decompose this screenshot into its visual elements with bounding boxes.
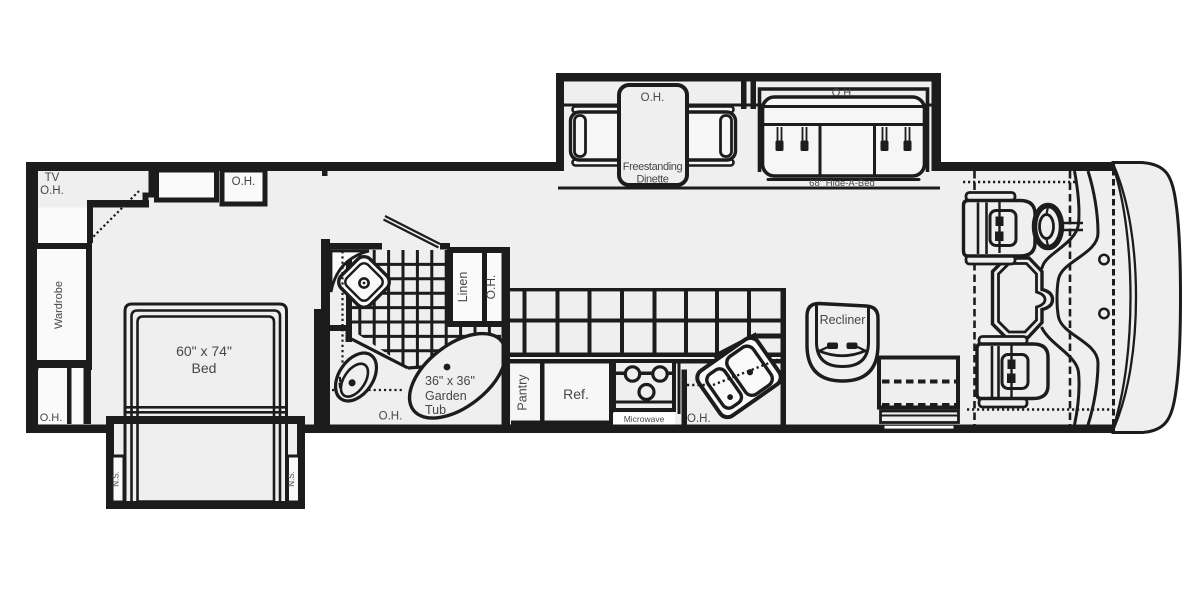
svg-text:Tub: Tub: [425, 403, 446, 417]
svg-text:Wardrobe: Wardrobe: [53, 281, 65, 329]
svg-text:O.H.: O.H.: [379, 411, 403, 423]
svg-text:Linen: Linen: [456, 272, 470, 303]
svg-text:N.S.: N.S.: [112, 471, 121, 487]
svg-text:60" x 74": 60" x 74": [176, 343, 232, 359]
svg-text:O.H.: O.H.: [641, 92, 665, 104]
svg-text:O.H.: O.H.: [232, 176, 256, 188]
svg-text:68" Hide-A-Bed: 68" Hide-A-Bed: [809, 178, 875, 189]
svg-text:Bed: Bed: [192, 360, 217, 376]
svg-text:O.H.: O.H.: [40, 412, 63, 424]
svg-text:O.H.: O.H.: [40, 185, 64, 197]
svg-text:N.S.: N.S.: [287, 471, 296, 487]
svg-text:Microwave: Microwave: [624, 414, 665, 424]
svg-text:Pantry: Pantry: [516, 374, 530, 411]
svg-text:Ref.: Ref.: [563, 386, 589, 402]
svg-text:Garden: Garden: [425, 389, 467, 403]
svg-text:36" x 36": 36" x 36": [425, 374, 475, 388]
svg-text:Dinette: Dinette: [636, 174, 668, 186]
svg-text:Recliner: Recliner: [820, 313, 866, 327]
svg-text:O.H.: O.H.: [484, 275, 498, 300]
svg-text:O.H.: O.H.: [832, 87, 855, 99]
svg-text:O.H.: O.H.: [687, 413, 711, 425]
svg-text:Freestanding: Freestanding: [623, 161, 683, 173]
svg-text:TV: TV: [45, 172, 60, 184]
